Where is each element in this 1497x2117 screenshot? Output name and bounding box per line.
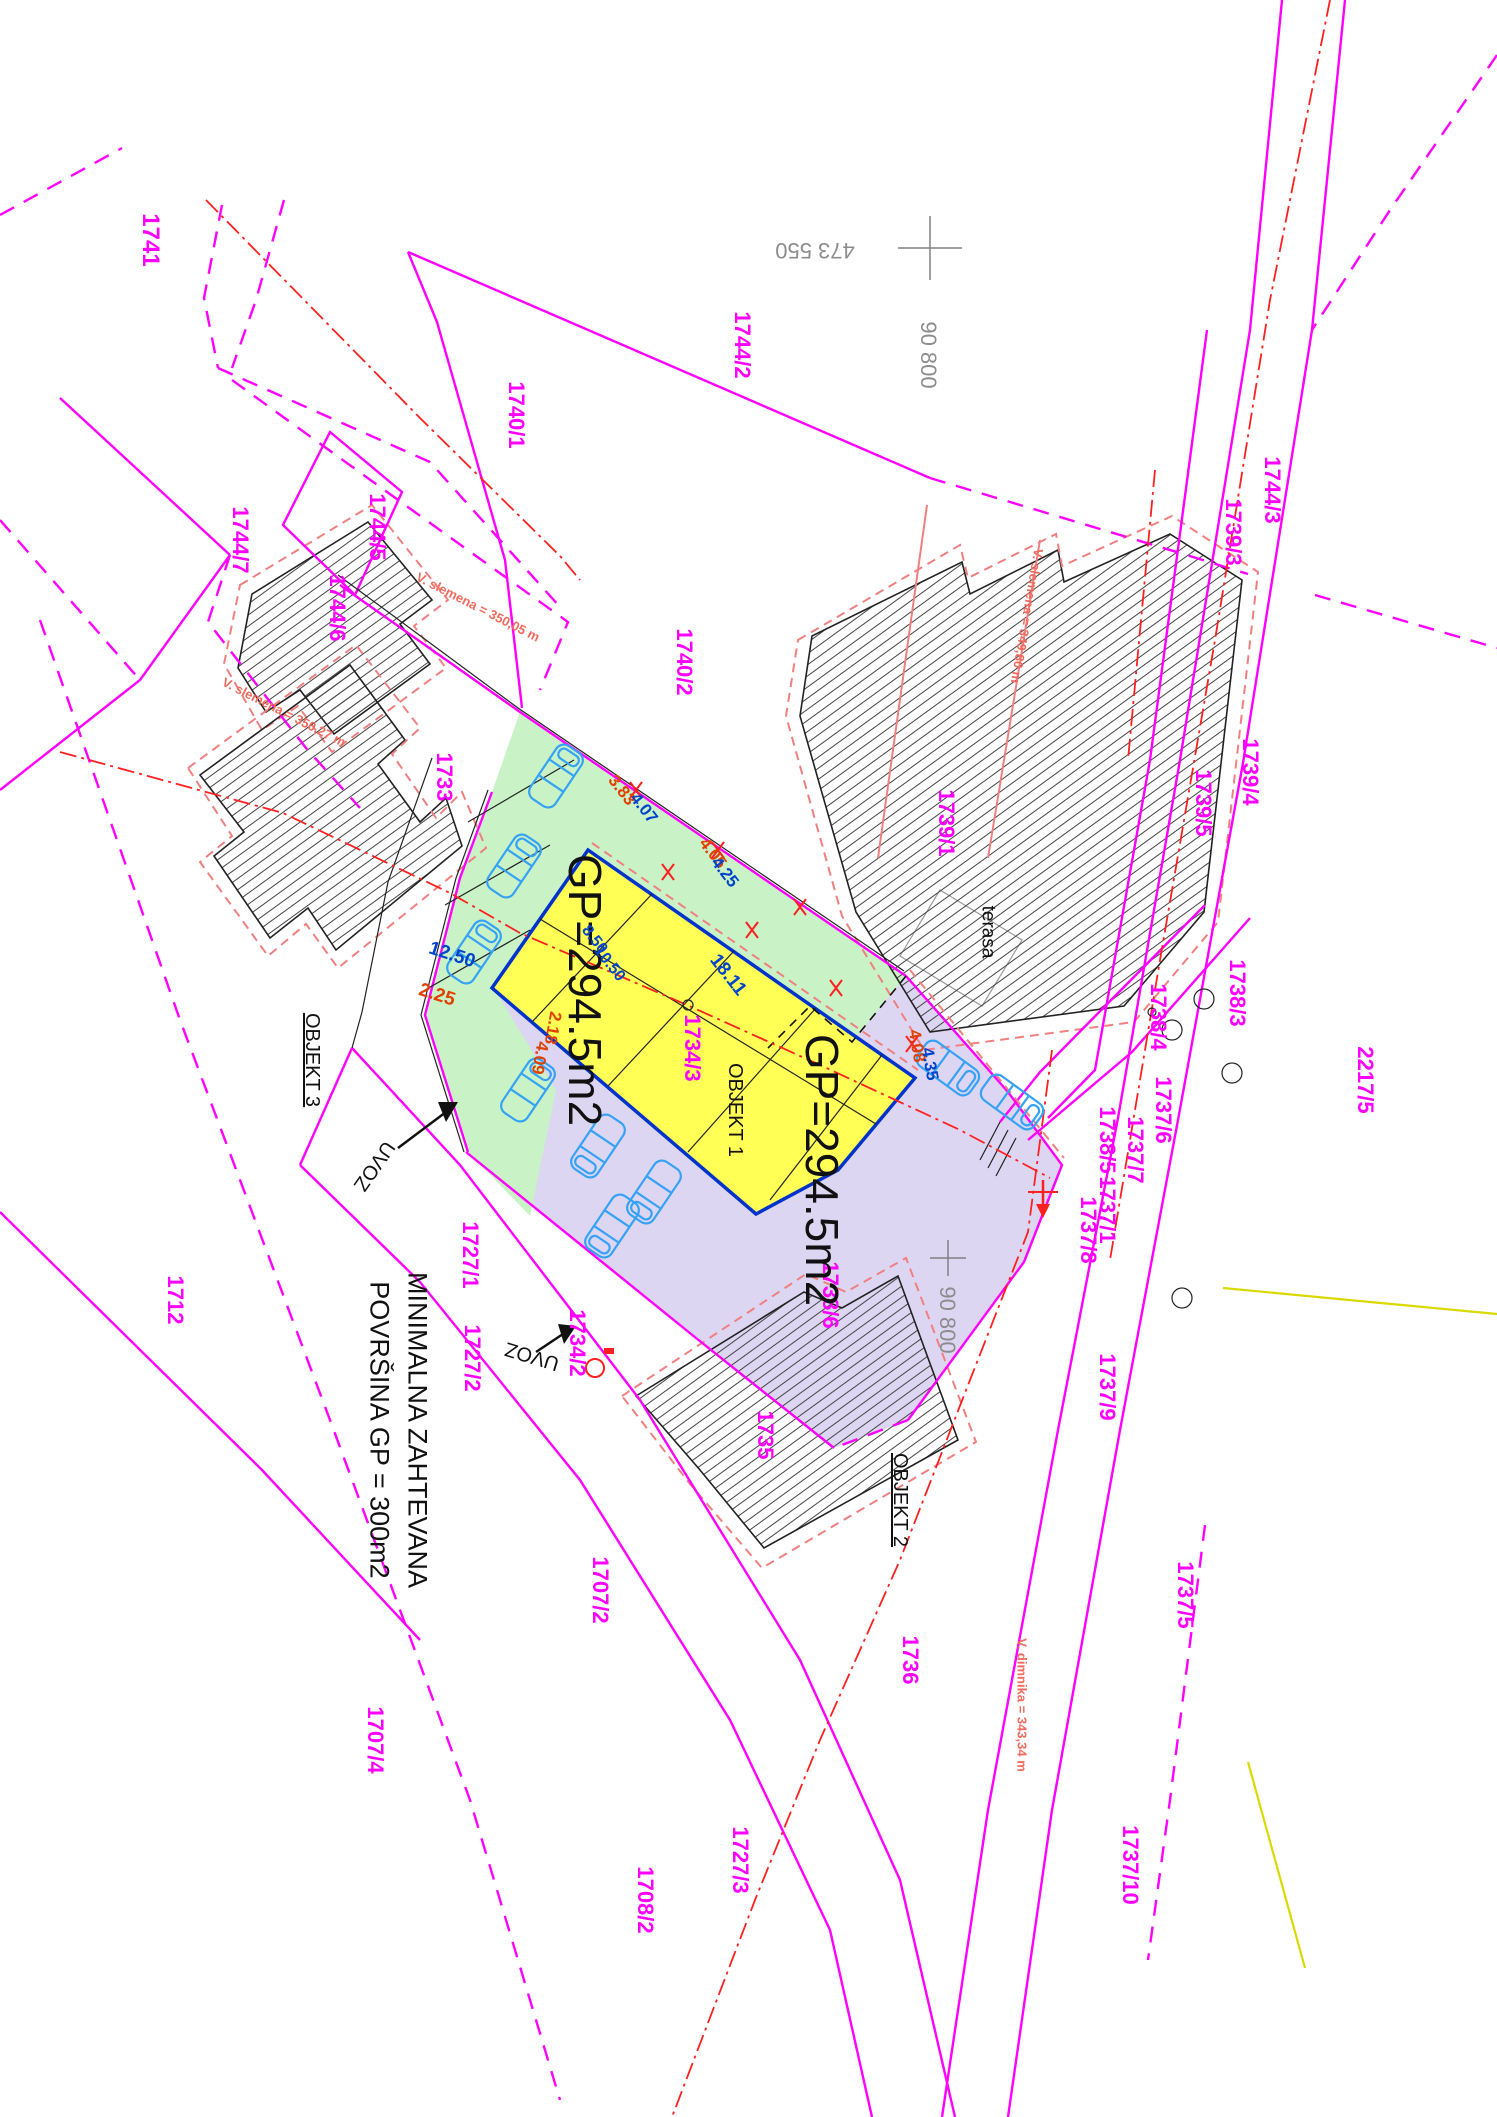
site-plan: 17411744/71744/51744/61740/11744/21740/2… [0, 0, 1497, 2117]
site-plan-svg [0, 0, 1497, 2117]
uvoz-arrow-icon [536, 1324, 576, 1352]
utility-yellow-lines [1223, 1288, 1497, 1968]
grid-cross-icon [898, 216, 962, 280]
building-1733 [188, 645, 486, 968]
